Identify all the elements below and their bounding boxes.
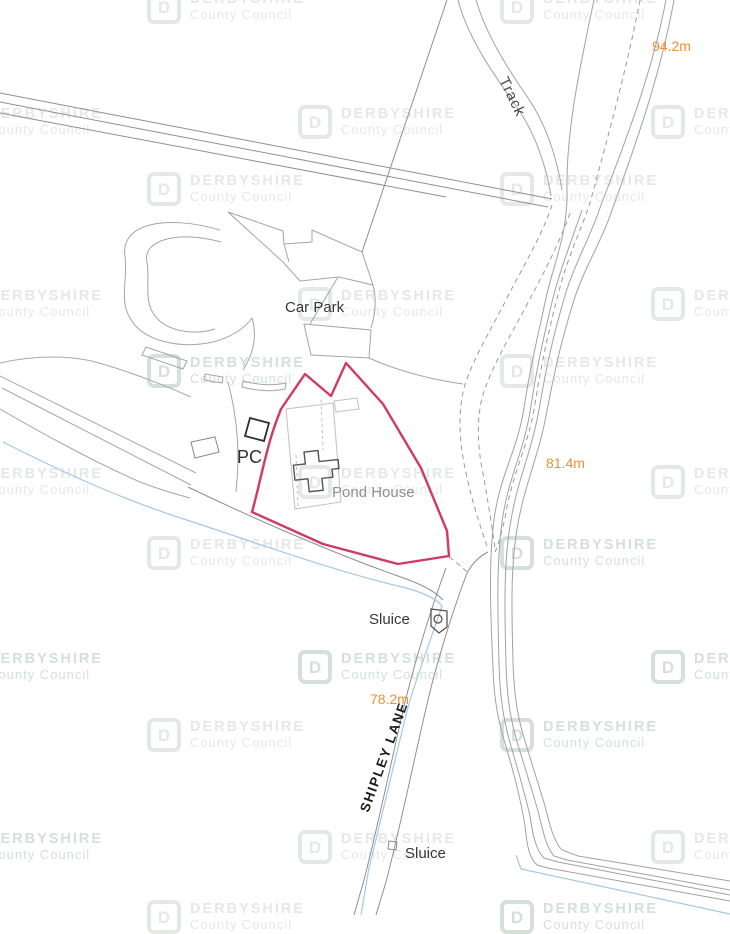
elevation-81-label: 81.4m bbox=[546, 455, 585, 471]
car-park-label: Car Park bbox=[285, 299, 344, 316]
water-lines bbox=[3, 442, 730, 915]
elevation-94-label: 94.2m bbox=[652, 38, 691, 54]
pc-label: PC bbox=[237, 447, 262, 468]
car-park-lines bbox=[124, 212, 463, 492]
pond-area-lines bbox=[0, 357, 196, 498]
site-boundary bbox=[252, 363, 449, 564]
field-boundary-lines bbox=[0, 0, 552, 252]
map-linework bbox=[0, 0, 730, 915]
elevation-78-label: 78.2m bbox=[370, 691, 409, 707]
pond-house-label: Pond House bbox=[332, 484, 415, 501]
map-canvas: DDERBYSHIRECounty CouncilDDERBYSHIRECoun… bbox=[0, 0, 730, 915]
sluice-lower-label: Sluice bbox=[405, 845, 446, 862]
road-lines bbox=[490, 0, 730, 901]
pc-building bbox=[245, 418, 269, 441]
sluice-upper-label: Sluice bbox=[369, 611, 410, 628]
dashed-paths bbox=[449, 0, 640, 572]
small-building bbox=[191, 437, 219, 458]
